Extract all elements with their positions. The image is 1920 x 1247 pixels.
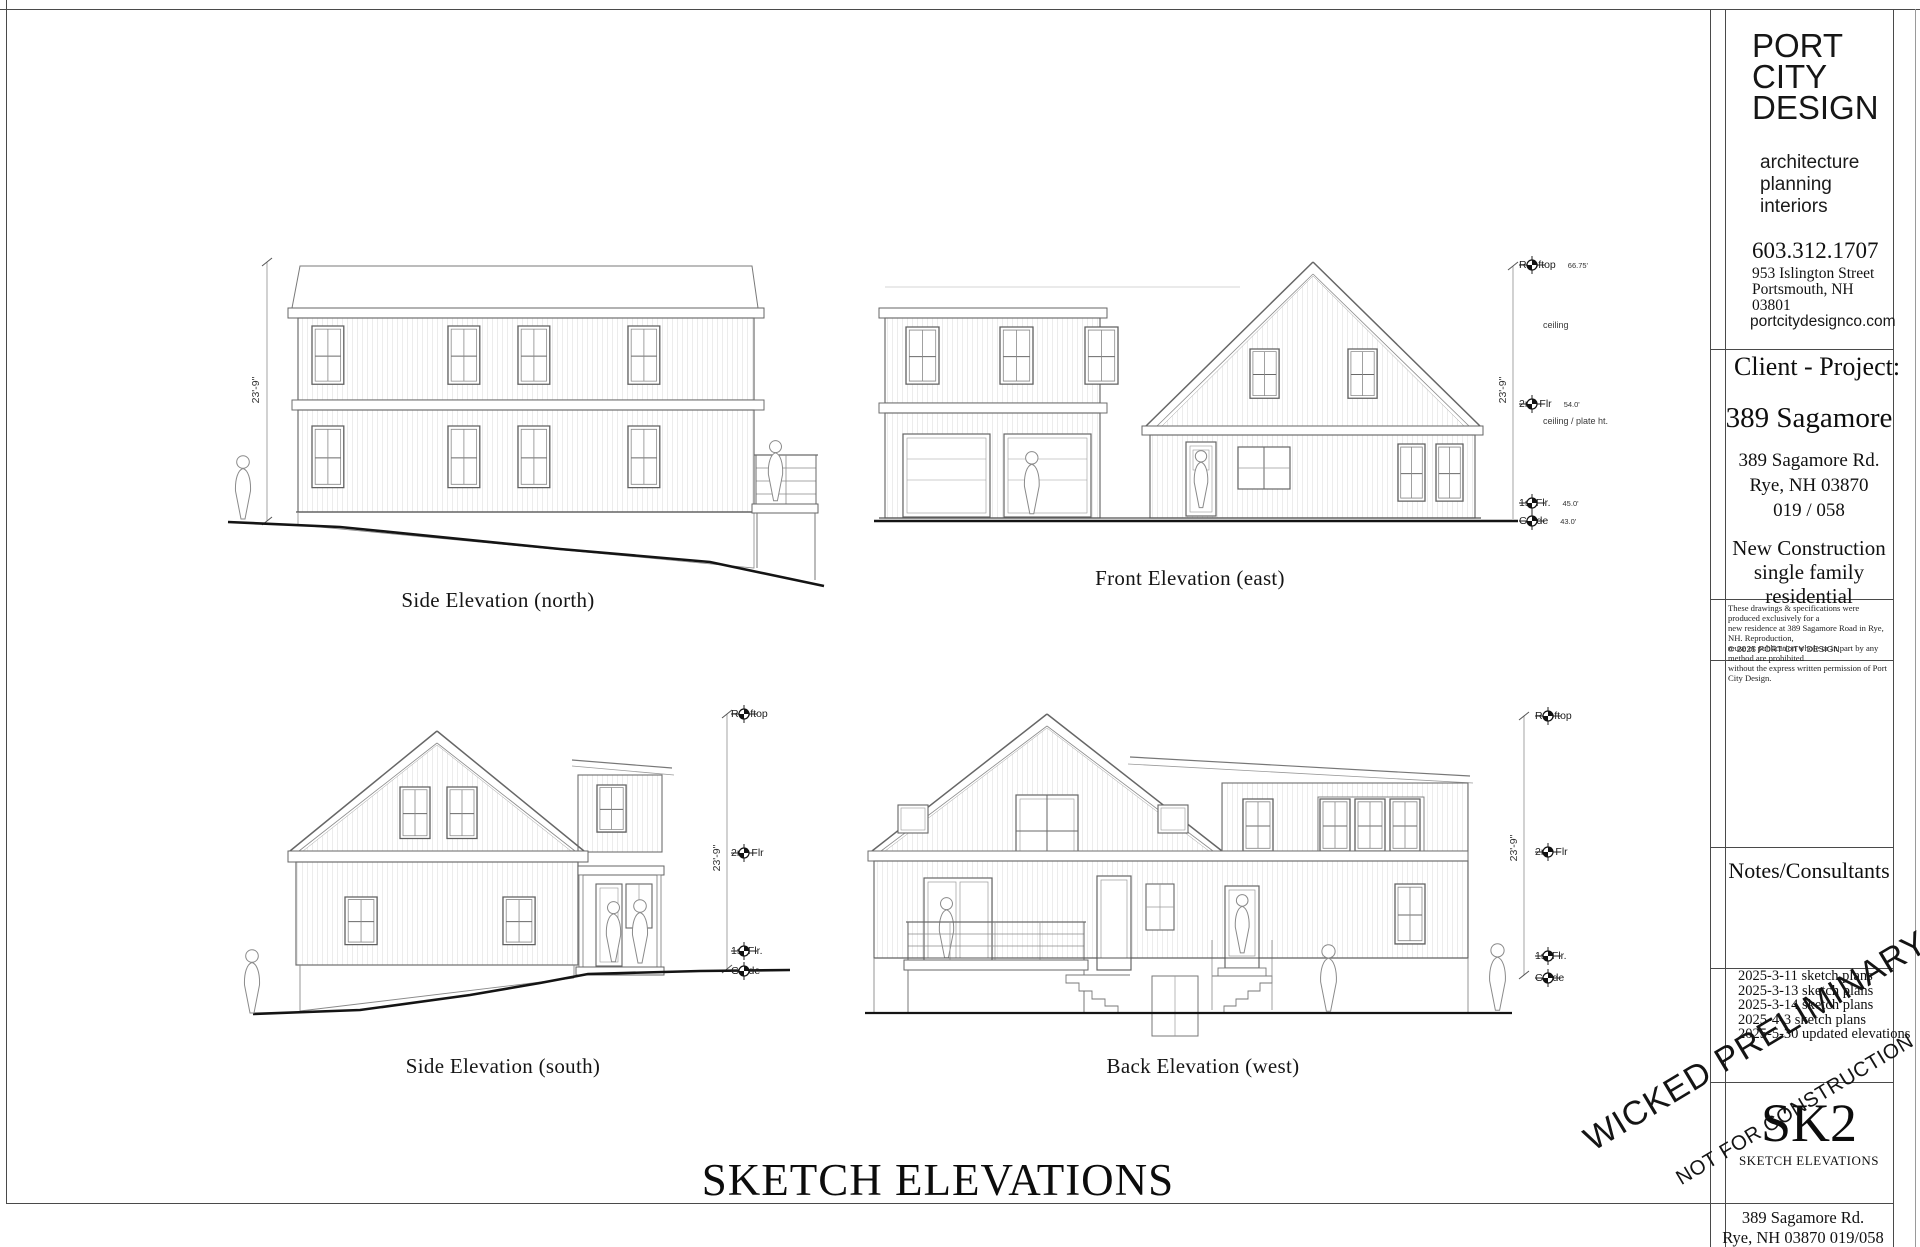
west-level-1st-floor: 1st Flr. bbox=[1535, 950, 1567, 962]
level-target-icon bbox=[1519, 494, 1545, 512]
east-elevation-drawing: 23'-9" bbox=[855, 248, 1555, 593]
south-dim-text: 23'-9" bbox=[711, 844, 723, 871]
west-level-2nd-floor: 2nd Flr bbox=[1535, 846, 1568, 858]
east-plate-note: ceiling / plate ht. bbox=[1543, 416, 1608, 426]
disclaimer-line: without the express written permission o… bbox=[1728, 663, 1892, 683]
level-target-icon bbox=[731, 705, 757, 723]
sheet-border-left bbox=[6, 0, 7, 1203]
level-target-icon bbox=[731, 962, 757, 980]
south-level-2nd-floor: 2nd Flr bbox=[731, 847, 764, 859]
level-target-icon bbox=[1519, 395, 1545, 413]
sheet-main-title: SKETCH ELEVATIONS bbox=[648, 1154, 1228, 1206]
south-level-1st-floor: 1st Flr. bbox=[731, 945, 763, 957]
sheet-border-right bbox=[1915, 9, 1916, 1247]
level-value: 43.0' bbox=[1560, 517, 1576, 526]
titleblock-footer: 389 Sagamore Rd. Rye, NH 03870 019/058 bbox=[1712, 1208, 1894, 1247]
firm-name-line: PORT bbox=[1752, 30, 1879, 61]
disclaimer-line: new residence at 389 Sagamore Road in Ry… bbox=[1728, 623, 1892, 643]
east-level-grade: Grade 43.0' bbox=[1519, 515, 1576, 527]
notes-consultants-heading: Notes/Consultants bbox=[1725, 858, 1893, 884]
east-level-rooftop: Rooftop 66.75' bbox=[1519, 259, 1588, 271]
firm-service: interiors bbox=[1760, 196, 1859, 218]
level-value: 45.0' bbox=[1563, 499, 1579, 508]
west-elevation-drawing: 23'-9" bbox=[855, 698, 1560, 1063]
footer-line: Rye, NH 03870 019/058 bbox=[1712, 1228, 1894, 1247]
firm-services: architecture planning interiors bbox=[1760, 152, 1859, 218]
level-target-icon bbox=[731, 844, 757, 862]
east-level-1st-floor: 1st Flr. 45.0' bbox=[1519, 497, 1579, 509]
firm-logo: PORT CITY DESIGN bbox=[1752, 30, 1879, 123]
drawing-sheet: 23'-9" Side Elevation (north) bbox=[0, 0, 1920, 1247]
north-elevation-drawing: 23'-9" bbox=[215, 250, 835, 595]
west-level-grade: Grade bbox=[1535, 972, 1564, 984]
titleblock-divider-4 bbox=[1710, 847, 1893, 848]
firm-website: portcitydesignco.com bbox=[1750, 313, 1896, 331]
firm-address-line: 03801 bbox=[1752, 298, 1874, 314]
level-value: 54.0' bbox=[1564, 400, 1580, 409]
titleblock-divider-1 bbox=[1710, 349, 1893, 350]
copyright-disclaimer: These drawings & specifications were pro… bbox=[1728, 603, 1892, 683]
level-target-icon bbox=[1535, 707, 1561, 725]
firm-phone: 603.312.1707 bbox=[1752, 238, 1879, 264]
project-description-line: New Construction bbox=[1725, 536, 1893, 560]
firm-address: 953 Islington Street Portsmouth, NH 0380… bbox=[1752, 266, 1874, 314]
firm-service: planning bbox=[1760, 174, 1859, 196]
east-elevation-caption: Front Elevation (east) bbox=[1040, 566, 1340, 591]
firm-address-line: Portsmouth, NH bbox=[1752, 282, 1874, 298]
west-dim-text: 23'-9" bbox=[1508, 834, 1520, 861]
south-level-grade: Grade bbox=[731, 965, 760, 977]
east-level-2nd-floor: 2nd Flr 54.0' bbox=[1519, 398, 1580, 410]
project-address-line: 389 Sagamore Rd. bbox=[1725, 448, 1893, 473]
titleblock-divider-6 bbox=[1710, 1082, 1893, 1083]
project-description-line: single family bbox=[1725, 560, 1893, 584]
firm-name-line: CITY bbox=[1752, 61, 1879, 92]
sheet-name: SKETCH ELEVATIONS bbox=[1725, 1153, 1893, 1169]
east-ceiling-note: ceiling bbox=[1543, 320, 1569, 330]
project-address: 389 Sagamore Rd. Rye, NH 03870 019 / 058 bbox=[1725, 448, 1893, 523]
east-dim-text: 23'-9" bbox=[1497, 376, 1509, 403]
west-elevation-caption: Back Elevation (west) bbox=[1053, 1054, 1353, 1079]
disclaimer-line: These drawings & specifications were pro… bbox=[1728, 603, 1892, 623]
level-target-icon bbox=[1535, 969, 1561, 987]
west-level-rooftop: Rooftop bbox=[1535, 710, 1572, 722]
firm-address-line: 953 Islington Street bbox=[1752, 266, 1874, 282]
south-level-rooftop: Rooftop bbox=[731, 708, 768, 720]
copyright-line: © 2025 PORT CITY DESIGN bbox=[1728, 644, 1840, 654]
client-project-heading: Client - Project: bbox=[1734, 352, 1900, 382]
project-name: 389 Sagamore bbox=[1725, 402, 1893, 435]
south-elevation-drawing: 23'-9" bbox=[225, 698, 800, 1063]
south-elevation-caption: Side Elevation (south) bbox=[353, 1054, 653, 1079]
project-address-line: 019 / 058 bbox=[1725, 498, 1893, 523]
level-target-icon bbox=[1535, 947, 1561, 965]
level-target-icon bbox=[1519, 512, 1545, 530]
project-description: New Construction single family residenti… bbox=[1725, 536, 1893, 608]
footer-line: 389 Sagamore Rd. bbox=[1712, 1208, 1894, 1228]
firm-service: architecture bbox=[1760, 152, 1859, 174]
level-value: 66.75' bbox=[1568, 261, 1588, 270]
north-dim-text: 23'-9" bbox=[250, 376, 262, 403]
level-target-icon bbox=[1519, 256, 1545, 274]
level-target-icon bbox=[1535, 843, 1561, 861]
north-elevation-caption: Side Elevation (north) bbox=[348, 588, 648, 613]
sheet-border-top bbox=[0, 9, 1920, 10]
level-target-icon bbox=[731, 942, 757, 960]
project-address-line: Rye, NH 03870 bbox=[1725, 473, 1893, 498]
firm-name-line: DESIGN bbox=[1752, 92, 1879, 123]
